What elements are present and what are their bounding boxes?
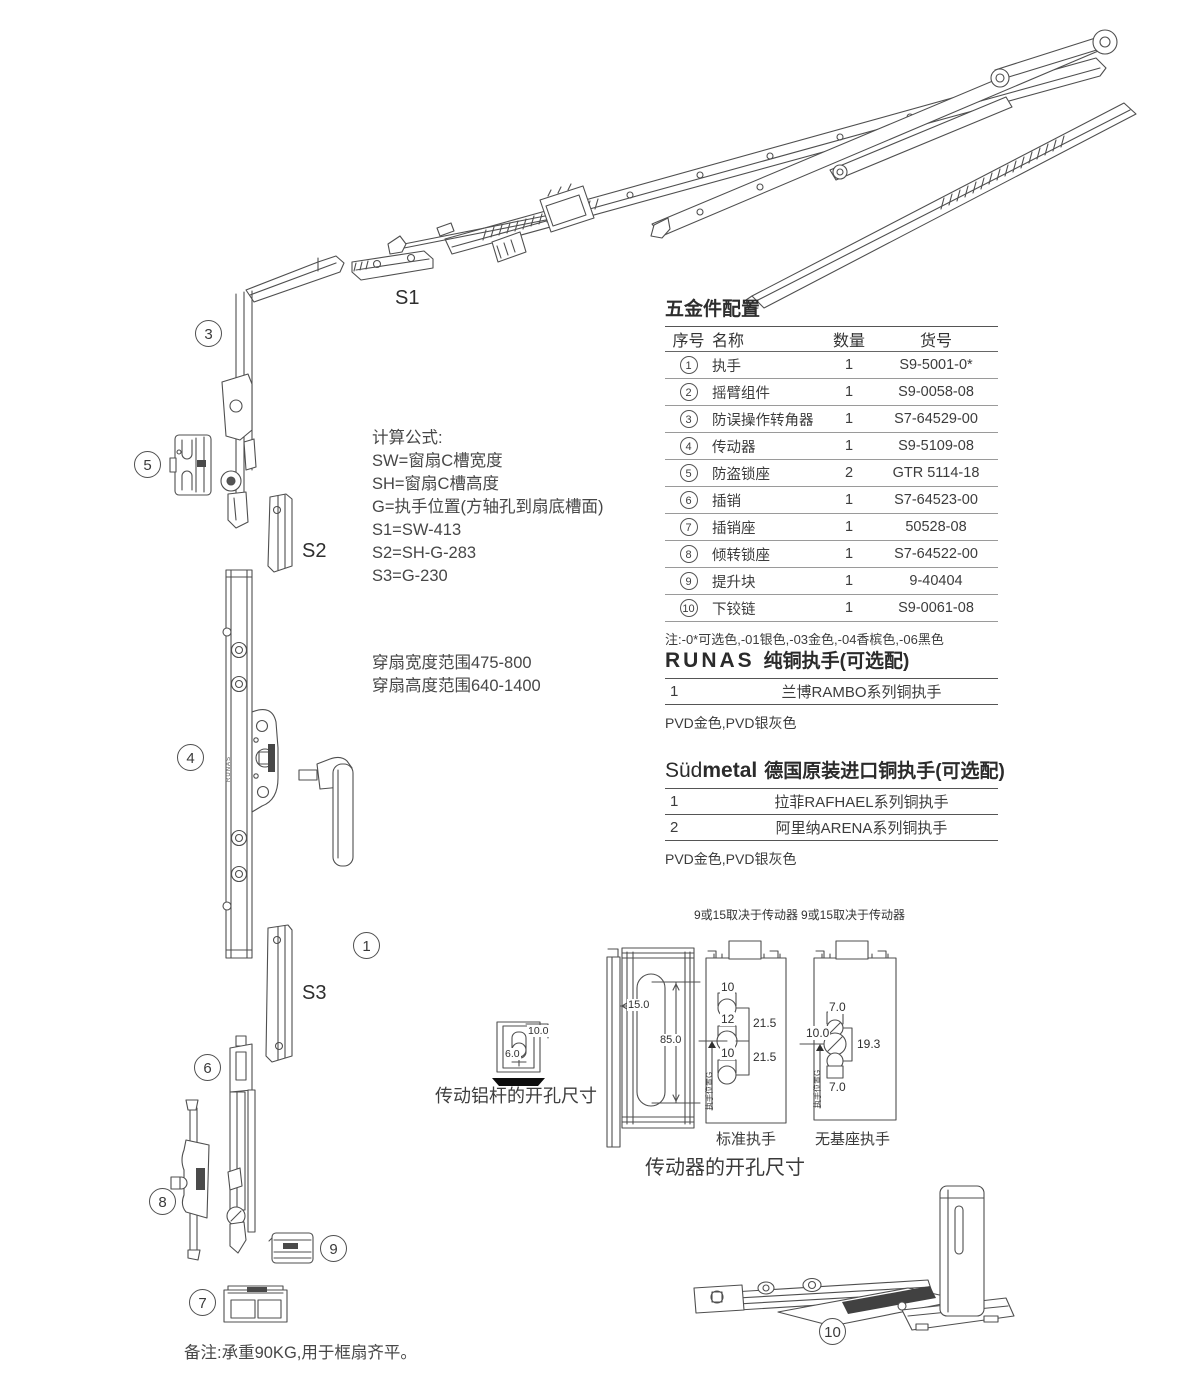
row-code: 50528-08 — [874, 519, 998, 535]
table-row: 4 传动器 1 S9-5109-08 — [665, 433, 998, 460]
table-row: 8 倾转锁座 1 S7-64522-00 — [665, 541, 998, 568]
row-name: 提升块 — [712, 571, 824, 592]
rod-drill-caption: 传动铝杆的开孔尺寸 — [435, 1082, 597, 1108]
standard-axis-label: 执手位置G — [704, 1072, 715, 1110]
bolt-keeper-drawing — [224, 1286, 287, 1322]
part-label-7: 7 — [189, 1289, 216, 1316]
sudmetal-section: Südmetal 德国原装进口铜执手(可选配) 1 拉菲RAFHAEL系列铜执手… — [665, 756, 998, 869]
row-name: 传动器 — [712, 436, 824, 457]
rod-brand-text: RUNAS — [226, 756, 232, 782]
standard-span-top: 21.5 — [752, 1016, 777, 1030]
row-name: 插销 — [712, 490, 824, 511]
formula-line: S2=SH-G-283 — [372, 542, 603, 565]
col-header-no: 序号 — [665, 327, 712, 351]
sash-height-range: 穿扇高度范围640-1400 — [372, 675, 541, 698]
row-name: 倾转锁座 — [712, 544, 824, 565]
col-header-code: 货号 — [874, 327, 998, 351]
no-base-handle-caption: 无基座执手 — [815, 1128, 890, 1149]
table-row: 1 执手 1 S9-5001-0* — [665, 352, 998, 379]
standard-dim-10-top: 10 — [720, 980, 735, 994]
standard-dim-10-bot: 10 — [720, 1046, 735, 1060]
sudmetal-title-cn: 德国原装进口铜执手(可选配) — [764, 756, 1005, 783]
runas-section: RUNAS 纯铜执手(可选配) 1 兰博RAMBO系列铜执手 PVD金色,PVD… — [665, 646, 998, 733]
row-name: 防误操作转角器 — [712, 409, 824, 430]
row-qty: 1 — [824, 600, 874, 616]
lift-block-drawing — [269, 1233, 313, 1263]
rod-drill-dim-6: 6.0 — [504, 1048, 521, 1060]
part-label-4: 4 — [177, 744, 204, 771]
part-label-6: 6 — [194, 1054, 221, 1081]
row-no: 5 — [680, 464, 698, 482]
s2-label: S2 — [302, 540, 326, 563]
no-base-dim-19: 19.3 — [856, 1037, 881, 1051]
row-code: S7-64523-00 — [874, 492, 998, 508]
sudmetal-row: 1 拉菲RAFHAEL系列铜执手 — [665, 789, 998, 815]
sudmetal-row-no: 1 — [665, 793, 725, 810]
profile-dim-85: 85.0 — [659, 1034, 682, 1046]
no-base-dim-7-bot: 7.0 — [828, 1080, 847, 1094]
formula-block: 计算公式: SW=窗扇C槽宽度 SH=窗扇C槽高度 G=执手位置(方轴孔到扇底槽… — [372, 427, 603, 588]
handle-drawing — [299, 757, 353, 866]
row-name: 插销座 — [712, 517, 824, 538]
part-label-5: 5 — [134, 451, 161, 478]
row-no: 1 — [680, 356, 698, 374]
part-label-8: 8 — [149, 1188, 176, 1215]
hardware-table-header: 序号 名称 数量 货号 — [665, 327, 998, 352]
row-code: 9-40404 — [874, 573, 998, 589]
row-code: S9-5001-0* — [874, 357, 998, 373]
s1-label: S1 — [395, 287, 419, 310]
runas-title-cn: 纯铜执手(可选配) — [764, 646, 910, 673]
footer-note: 备注:承重90KG,用于框扇齐平。 — [184, 1339, 417, 1363]
part-label-3: 3 — [195, 320, 222, 347]
part-label-9: 9 — [320, 1235, 347, 1262]
hardware-table: 五金件配置 序号 名称 数量 货号 1 执手 1 S9-5001-0* 2 摇臂… — [665, 294, 998, 648]
row-code: S9-0058-08 — [874, 384, 998, 400]
row-no: 7 — [680, 518, 698, 536]
table-row: 6 插销 1 S7-64523-00 — [665, 487, 998, 514]
hardware-table-title: 五金件配置 — [665, 294, 998, 327]
part-label-1: 1 — [353, 932, 380, 959]
scissor-arm-assembly-drawing — [388, 30, 1136, 310]
formula-line: SH=窗扇C槽高度 — [372, 473, 603, 496]
row-qty: 1 — [824, 384, 874, 400]
row-code: S9-5109-08 — [874, 438, 998, 454]
row-no: 2 — [680, 383, 698, 401]
sudmetal-row-name: 阿里纳ARENA系列铜执手 — [725, 817, 998, 838]
gear-drill-caption: 传动器的开孔尺寸 — [645, 1151, 805, 1180]
no-base-dim-10: 10.0 — [805, 1026, 830, 1040]
standard-dim-12: 12 — [720, 1012, 735, 1026]
row-code: S7-64529-00 — [874, 411, 998, 427]
runas-row: 1 兰博RAMBO系列铜执手 — [665, 679, 998, 705]
row-name: 防盗锁座 — [712, 463, 824, 484]
row-code: S9-0061-08 — [874, 600, 998, 616]
table-row: 10 下铰链 1 S9-0061-08 — [665, 595, 998, 622]
sudmetal-brand-bold: metal — [702, 759, 757, 783]
row-name: 下铰链 — [712, 598, 824, 619]
row-qty: 1 — [824, 519, 874, 535]
row-no: 3 — [680, 410, 698, 428]
runas-brand: RUNAS — [665, 649, 755, 673]
s3-label: S3 — [302, 982, 326, 1005]
row-no: 10 — [680, 599, 698, 617]
sudmetal-finish-note: PVD金色,PVD银灰色 — [665, 849, 998, 869]
row-qty: 1 — [824, 438, 874, 454]
row-qty: 2 — [824, 465, 874, 481]
profile-section-drawing — [607, 948, 700, 1147]
row-code: GTR 5114-18 — [874, 465, 998, 481]
table-row: 3 防误操作转角器 1 S7-64529-00 — [665, 406, 998, 433]
corner-drive-drawing — [221, 256, 344, 528]
s2-keeper-plate-drawing — [268, 494, 292, 572]
row-qty: 1 — [824, 492, 874, 508]
row-qty: 1 — [824, 411, 874, 427]
sash-range-block: 穿扇宽度范围475-800 穿扇高度范围640-1400 — [372, 652, 541, 698]
runas-finish-note: PVD金色,PVD银灰色 — [665, 713, 998, 733]
standard-top-note: 9或15取决于传动器 — [694, 906, 798, 923]
anti-theft-keeper-drawing — [170, 435, 211, 495]
formula-line: SW=窗扇C槽宽度 — [372, 450, 603, 473]
col-header-qty: 数量 — [824, 327, 874, 351]
latch-bolt-drawing — [227, 1036, 255, 1253]
s3-keeper-plate-drawing — [266, 925, 292, 1062]
profile-dim-15: 15.0 — [627, 999, 650, 1011]
table-row: 5 防盗锁座 2 GTR 5114-18 — [665, 460, 998, 487]
sudmetal-row-name: 拉菲RAFHAEL系列铜执手 — [725, 791, 998, 812]
s1-keeper-plate-drawing — [352, 251, 433, 280]
formula-line: S1=SW-413 — [372, 519, 603, 542]
runas-row-no: 1 — [665, 683, 725, 700]
table-row: 7 插销座 1 50528-08 — [665, 514, 998, 541]
sudmetal-brand-light: Süd — [665, 759, 702, 783]
sudmetal-row: 2 阿里纳ARENA系列铜执手 — [665, 815, 998, 841]
row-code: S7-64522-00 — [874, 546, 998, 562]
no-base-dim-7-top: 7.0 — [828, 1000, 847, 1014]
runas-row-name: 兰博RAMBO系列铜执手 — [725, 681, 998, 702]
line-art-layer — [0, 0, 1200, 1400]
standard-handle-caption: 标准执手 — [716, 1128, 776, 1149]
table-row: 9 提升块 1 9-40404 — [665, 568, 998, 595]
row-qty: 1 — [824, 573, 874, 589]
tilt-lock-keeper-drawing — [171, 1100, 209, 1260]
sudmetal-section-title: Südmetal 德国原装进口铜执手(可选配) — [665, 756, 998, 783]
formula-title: 计算公式: — [372, 427, 603, 450]
runas-section-title: RUNAS 纯铜执手(可选配) — [665, 646, 998, 673]
rod-drill-dim-10: 10.0 — [527, 1025, 549, 1037]
row-no: 9 — [680, 572, 698, 590]
col-header-name: 名称 — [712, 327, 824, 351]
row-no: 6 — [680, 491, 698, 509]
bottom-hinge-drawing — [694, 1186, 1014, 1330]
hardware-catalog-page: 3 5 4 1 6 8 9 7 10 S1 S2 S3 RUNAS 计算公式: … — [0, 0, 1200, 1400]
row-name: 摇臂组件 — [712, 382, 824, 403]
no-base-top-note: 9或15取决于传动器 — [801, 906, 905, 923]
no-base-axis-label: 执手位置G — [812, 1070, 823, 1108]
row-no: 8 — [680, 545, 698, 563]
sudmetal-row-no: 2 — [665, 819, 725, 836]
row-no: 4 — [680, 437, 698, 455]
row-name: 执手 — [712, 355, 824, 376]
part-label-10: 10 — [819, 1318, 846, 1345]
standard-span-bot: 21.5 — [752, 1050, 777, 1064]
table-row: 2 摇臂组件 1 S9-0058-08 — [665, 379, 998, 406]
row-qty: 1 — [824, 357, 874, 373]
formula-line: G=执手位置(方轴孔到扇底槽面) — [372, 496, 603, 519]
formula-line: S3=G-230 — [372, 565, 603, 588]
row-qty: 1 — [824, 546, 874, 562]
sash-width-range: 穿扇宽度范围475-800 — [372, 652, 541, 675]
